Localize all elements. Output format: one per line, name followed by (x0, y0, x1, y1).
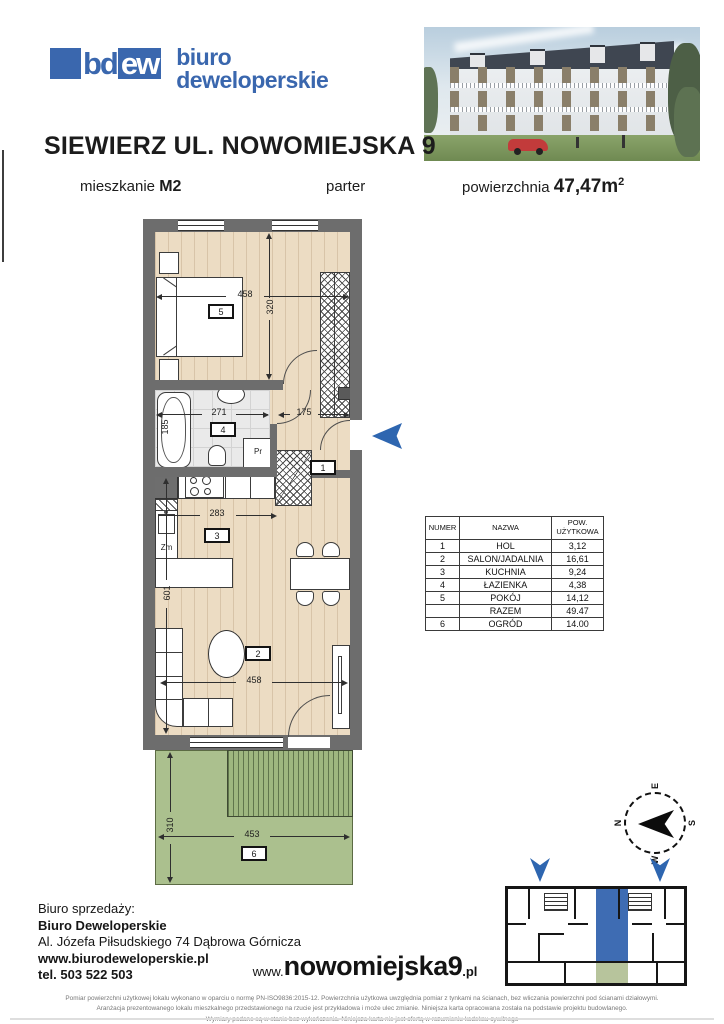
key-plan-wall (568, 923, 588, 925)
key-plan-wall (528, 889, 530, 919)
key-plan-stairs (544, 893, 568, 911)
lawn (424, 135, 700, 161)
logo-name-line2: deweloperskie (176, 69, 328, 92)
dim-line (236, 515, 274, 516)
unit-line: mieszkanie M2 (80, 178, 181, 196)
key-plan-arrow-icon (650, 858, 670, 882)
flyer-page: bd ew biuro deweloperskie SIEWIER (0, 0, 724, 1024)
dim-line (269, 320, 270, 376)
building-render-image (424, 27, 700, 161)
tv-screen (338, 656, 342, 714)
wall-bedroom-bottom (155, 380, 283, 390)
window-row (450, 91, 674, 107)
nightstand (159, 359, 179, 381)
dim-line (318, 414, 346, 415)
area-label: powierzchnia (462, 179, 550, 196)
wardrobe-divider (334, 272, 335, 418)
key-plan-building (505, 886, 687, 986)
key-plan (503, 856, 693, 990)
table-row: 4ŁAZIENKA4,38 (426, 579, 604, 592)
sofa-vertical (155, 628, 183, 700)
compass-n: N (613, 818, 623, 828)
wall-left (143, 219, 155, 750)
dormer-window (640, 42, 655, 61)
key-plan-wall (618, 889, 620, 919)
car-wheel (514, 148, 521, 155)
cell-numer (426, 605, 460, 618)
dim-line (158, 296, 226, 297)
floor-label: parter (326, 178, 365, 195)
logo: bd ew biuro deweloperskie (50, 46, 328, 91)
window-row (450, 115, 674, 131)
compass-s: S (687, 818, 697, 828)
rooms-table: NUMER NAZWA POW. UŻYTKOWA 1HOL3,12 2SALO… (425, 516, 604, 631)
window-row (450, 67, 674, 83)
logo-name-line1: biuro (176, 46, 328, 69)
contact-heading: Biuro sprzedaży: (38, 901, 301, 918)
dining-table (290, 558, 350, 590)
cell-numer: 3 (426, 566, 460, 579)
stove-burner (202, 476, 211, 485)
legal-line-2: Aranżacja prezentowanego lokalu mieszkal… (10, 1004, 714, 1014)
cell-pow: 14.00 (552, 618, 604, 631)
dim-line (272, 682, 344, 683)
floor-plan: Pr Zm (138, 216, 418, 901)
key-plan-wall (632, 923, 652, 925)
room-label-kitchen: 3 (204, 528, 230, 543)
entrance-opening (350, 420, 362, 450)
key-plan-wall (538, 933, 540, 961)
washer-label: Pr (248, 447, 268, 456)
key-plan-wall (574, 889, 576, 919)
cell-numer: 1 (426, 540, 460, 553)
dim-line (164, 682, 236, 683)
dim-garden-w: 453 (234, 829, 270, 839)
dim-line (170, 756, 171, 812)
car-wheel (536, 148, 543, 155)
dim-line (170, 844, 171, 878)
cell-numer: 4 (426, 579, 460, 592)
cell-nazwa: ŁAZIENKA (460, 579, 552, 592)
wall-top (143, 219, 362, 232)
cell-nazwa: OGRÓD (460, 618, 552, 631)
window (178, 220, 224, 231)
chair (322, 542, 340, 557)
wall-right (350, 219, 362, 750)
page-edge-line (2, 150, 4, 262)
dim-line (158, 515, 200, 516)
cell-nazwa: KUCHNIA (460, 566, 552, 579)
unit-value: M2 (159, 178, 181, 195)
dim-garden-h: 310 (165, 811, 175, 839)
table-header-row: NUMER NAZWA POW. UŻYTKOWA (426, 517, 604, 540)
sofa-cushion-line (155, 676, 183, 677)
logo-letters-bd: bd (83, 48, 117, 79)
entrance-arrow-icon (372, 423, 402, 449)
dormer-window (590, 45, 605, 63)
dim-living-w: 458 (236, 675, 272, 685)
balcony-row (450, 107, 674, 112)
dim-living-h: 601 (162, 578, 172, 608)
dim-kitchen-w: 283 (200, 508, 234, 518)
logo-name: biuro deweloperskie (176, 46, 328, 91)
table-row: 6OGRÓD14.00 (426, 618, 604, 631)
highlighted-garden (596, 963, 628, 983)
person (622, 135, 625, 148)
highlighted-unit (596, 889, 628, 961)
key-plan-wall (564, 963, 566, 983)
area-line: powierzchnia 47,47m2 (462, 176, 624, 198)
cell-pow: 3,12 (552, 540, 604, 553)
site-name: nowomiejska9 (284, 951, 463, 982)
person (576, 137, 579, 148)
logo-mark: bd ew (50, 46, 161, 80)
dim-line (270, 836, 346, 837)
key-plan-wall (664, 889, 666, 919)
cell-numer: 2 (426, 553, 460, 566)
dim-line (166, 482, 167, 580)
table-row-total: RAZEM49.47 (426, 605, 604, 618)
cell-nazwa: POKÓJ (460, 592, 552, 605)
stove-burner (190, 487, 199, 496)
unit-label: mieszkanie (80, 178, 155, 195)
area-value: 47,47m (554, 176, 618, 197)
balcony-row (450, 83, 674, 88)
key-plan-wall (508, 923, 526, 925)
dim-line (166, 608, 167, 730)
key-plan-wall (538, 933, 564, 935)
table-row: 5POKÓJ14,12 (426, 592, 604, 605)
wall-bath-hall (270, 424, 277, 477)
site-prefix: www. (253, 964, 284, 982)
compass-e: E (650, 781, 660, 791)
logo-square-icon (50, 48, 81, 79)
tree (674, 87, 700, 157)
area-sup: 2 (618, 176, 624, 188)
room-label-garden: 6 (241, 846, 267, 861)
dim-hall-w: 175 (288, 407, 320, 417)
cell-pow: 16,61 (552, 553, 604, 566)
dim-bedroom-w: 458 (226, 289, 264, 299)
project-website: www.nowomiejska9.pl (225, 948, 505, 982)
window-living (190, 737, 283, 748)
window (272, 220, 318, 231)
dim-line (264, 296, 348, 297)
site-tld: .pl (462, 964, 477, 982)
col-header-pow: POW. UŻYTKOWA (552, 517, 604, 540)
sofa-cushion-line (155, 652, 183, 653)
table-row: 2SALON/JADALNIA16,61 (426, 553, 604, 566)
logo-letters-ew: ew (118, 48, 161, 79)
cell-pow: 9,24 (552, 566, 604, 579)
key-plan-wall (652, 933, 654, 961)
tree (424, 67, 438, 133)
page-title: SIEWIERZ UL. NOWOMIEJSKA 9 (44, 132, 436, 161)
key-plan-wall (656, 963, 658, 983)
nightstand (159, 252, 179, 274)
dim-line (269, 236, 270, 298)
wall-bath-bottom (155, 467, 270, 477)
dim-bath-h: 185 (160, 413, 170, 441)
stove-burner (204, 488, 211, 495)
dim-bedroom-h: 320 (265, 292, 275, 322)
compass: E S W N (612, 780, 700, 868)
key-plan-stairs (628, 893, 652, 911)
dormer-window (530, 49, 545, 65)
chair (296, 542, 314, 557)
toilet (208, 445, 226, 466)
room-label-bedroom: 5 (208, 304, 234, 319)
key-plan-wall (666, 923, 684, 925)
col-header-nazwa: NAZWA (460, 517, 552, 540)
cell-nazwa: SALON/JADALNIA (460, 553, 552, 566)
room-label-hall: 1 (310, 460, 336, 475)
dormer-window (470, 53, 485, 67)
cell-numer: 5 (426, 592, 460, 605)
bed-headboard-line (176, 278, 177, 356)
room-label-living: 2 (245, 646, 271, 661)
table-row: 3KUCHNIA9,24 (426, 566, 604, 579)
cell-nazwa: HOL (460, 540, 552, 553)
contact-company: Biuro Deweloperskie (38, 918, 301, 935)
cell-pow: 49.47 (552, 605, 604, 618)
legal-line-1: Pomiar powierzchni użytkowej lokalu wyko… (10, 994, 714, 1004)
table-row: 1HOL3,12 (426, 540, 604, 553)
key-plan-arrow-icon (530, 858, 550, 882)
hall-wardrobe-diagonal (275, 450, 312, 506)
cell-pow: 14,12 (552, 592, 604, 605)
room-label-bath: 4 (210, 422, 236, 437)
col-header-numer: NUMER (426, 517, 460, 540)
cell-numer: 6 (426, 618, 460, 631)
sofa-cushion-line (208, 698, 209, 727)
footer-divider (10, 1018, 714, 1020)
stove-burner (190, 477, 197, 484)
garden-decking (227, 750, 353, 817)
coffee-table (208, 630, 245, 678)
cell-nazwa: RAZEM (460, 605, 552, 618)
dim-bath-w: 271 (202, 407, 236, 417)
balcony-door-opening (288, 737, 330, 748)
cell-pow: 4,38 (552, 579, 604, 592)
